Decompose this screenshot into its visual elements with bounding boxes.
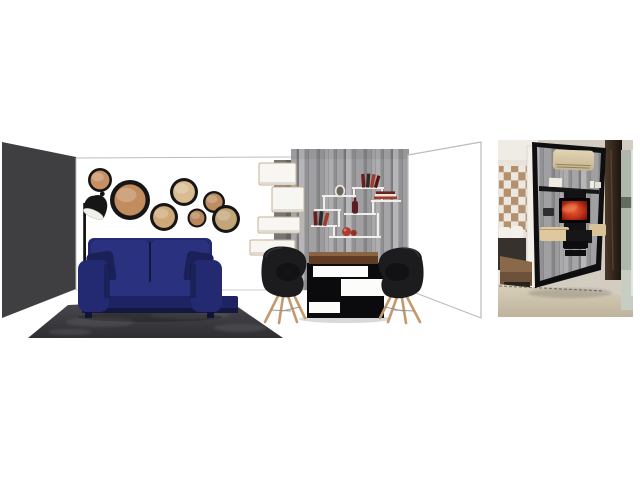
reference-photo <box>498 140 633 317</box>
checkered-wall <box>499 166 528 232</box>
wall-mirror <box>88 168 112 192</box>
sofa-leg <box>207 312 214 318</box>
round-mirror-cluster <box>88 168 240 233</box>
dining-chair-right <box>379 247 424 323</box>
shelf-box <box>259 163 296 185</box>
switch-plate <box>543 208 554 216</box>
bed-pillow <box>511 226 523 239</box>
base-white-band <box>341 279 384 296</box>
black-box <box>563 241 588 248</box>
moodboard-page <box>0 0 640 480</box>
dining-table <box>299 252 391 323</box>
wall-mirror <box>150 203 178 231</box>
wall-mirror <box>110 180 150 220</box>
wall-mirror <box>188 209 207 228</box>
sofa-leg <box>85 312 92 318</box>
left-side-wall <box>2 142 76 318</box>
book-stack <box>374 191 397 199</box>
tv <box>559 198 590 223</box>
ac-unit <box>553 149 595 170</box>
black-box <box>565 250 586 256</box>
base-white-band <box>313 266 368 277</box>
dining-chair-left <box>261 246 306 323</box>
bed-pillow <box>499 227 511 239</box>
bedroom-view <box>498 146 537 290</box>
right-side-wall-outline <box>408 142 481 318</box>
shelf-box <box>272 187 304 212</box>
moodboard-canvas <box>0 0 640 480</box>
wall-mirror <box>170 178 198 206</box>
media-wall <box>532 142 606 288</box>
back-wall-top-line <box>76 157 291 158</box>
wall-mirror <box>212 205 240 233</box>
white-deco-box <box>549 178 562 187</box>
oval-frame <box>336 186 345 197</box>
room-sketch <box>2 142 481 338</box>
sofa <box>78 238 238 322</box>
base-white-band <box>309 302 340 313</box>
